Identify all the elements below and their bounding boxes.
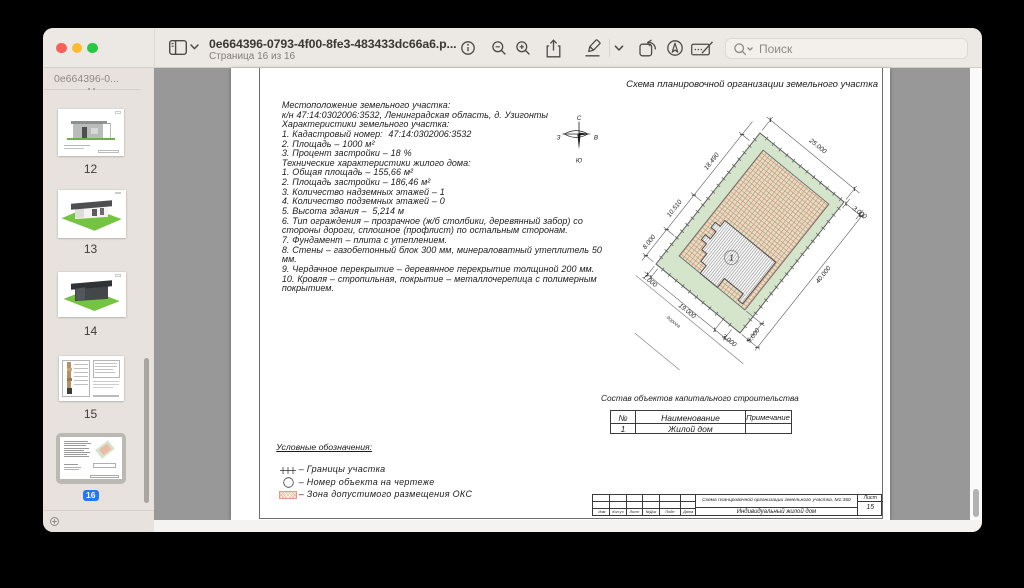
svg-text:В: В	[593, 135, 597, 142]
svg-text:40.000: 40.000	[815, 265, 833, 285]
svg-text:дорога: дорога	[665, 315, 682, 330]
svg-text:З: З	[556, 135, 560, 142]
svg-text:5.000: 5.000	[746, 327, 762, 344]
svg-text:3.000: 3.000	[720, 333, 737, 349]
svg-text:1: 1	[729, 254, 733, 263]
svg-text:10.510: 10.510	[666, 199, 684, 219]
svg-text:С: С	[576, 115, 581, 122]
svg-text:Ю: Ю	[575, 157, 582, 164]
svg-text:18.490: 18.490	[703, 151, 721, 171]
svg-text:8.000: 8.000	[642, 234, 658, 251]
